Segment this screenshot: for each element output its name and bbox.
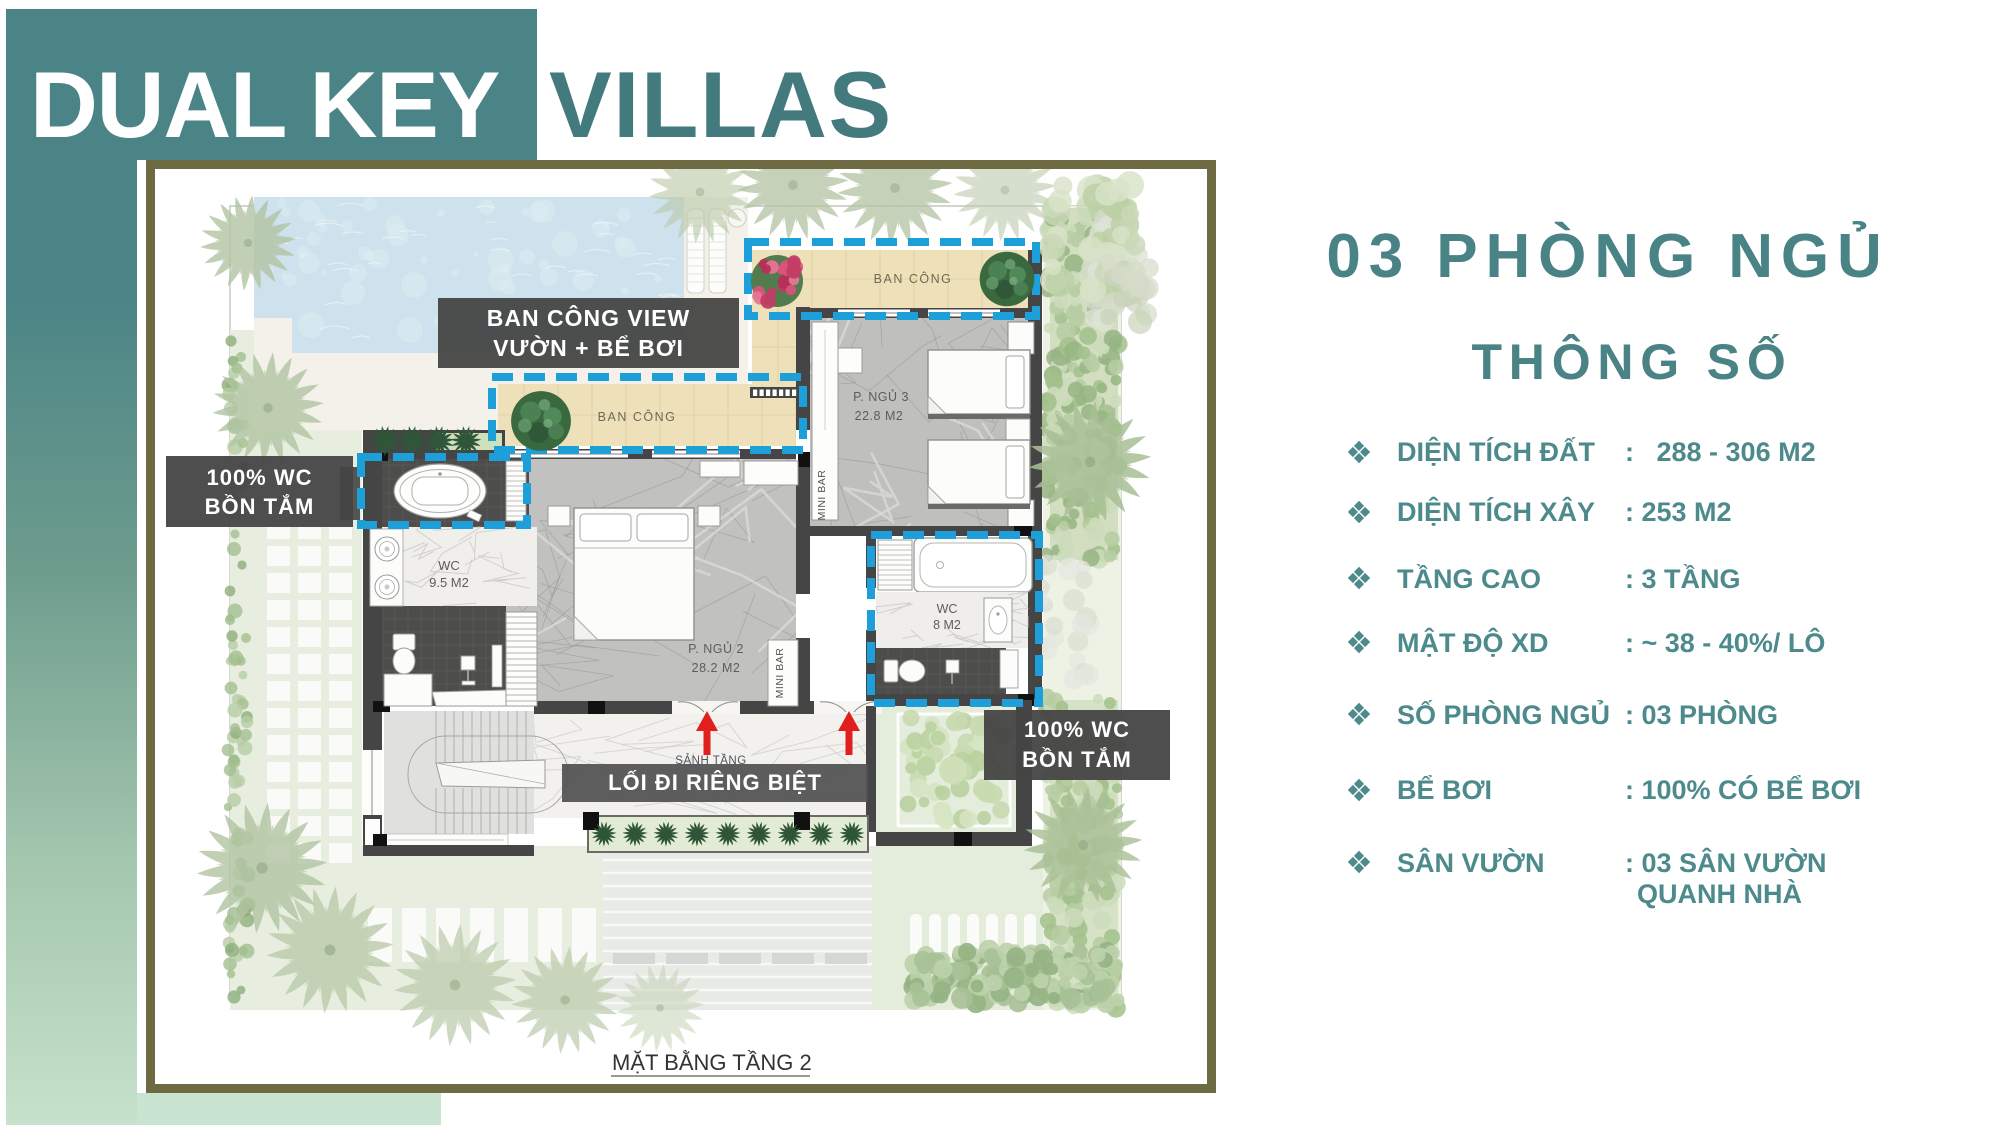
svg-text:MINI BAR: MINI BAR [816, 470, 828, 521]
svg-text:P. NGỦ 2: P. NGỦ 2 [688, 641, 744, 656]
svg-text:BAN CÔNG: BAN CÔNG [874, 271, 953, 286]
svg-text:MINI BAR: MINI BAR [774, 648, 786, 699]
svg-text:22.8 M2: 22.8 M2 [855, 409, 904, 423]
svg-text:8 M2: 8 M2 [933, 618, 961, 632]
svg-text:9.5 M2: 9.5 M2 [429, 575, 469, 590]
svg-text:P. NGỦ 3: P. NGỦ 3 [853, 389, 909, 404]
svg-text:BAN CÔNG: BAN CÔNG [598, 409, 677, 424]
svg-text:WC: WC [937, 602, 958, 616]
svg-text:WC: WC [438, 558, 460, 573]
svg-text:28.2 M2: 28.2 M2 [692, 661, 741, 675]
